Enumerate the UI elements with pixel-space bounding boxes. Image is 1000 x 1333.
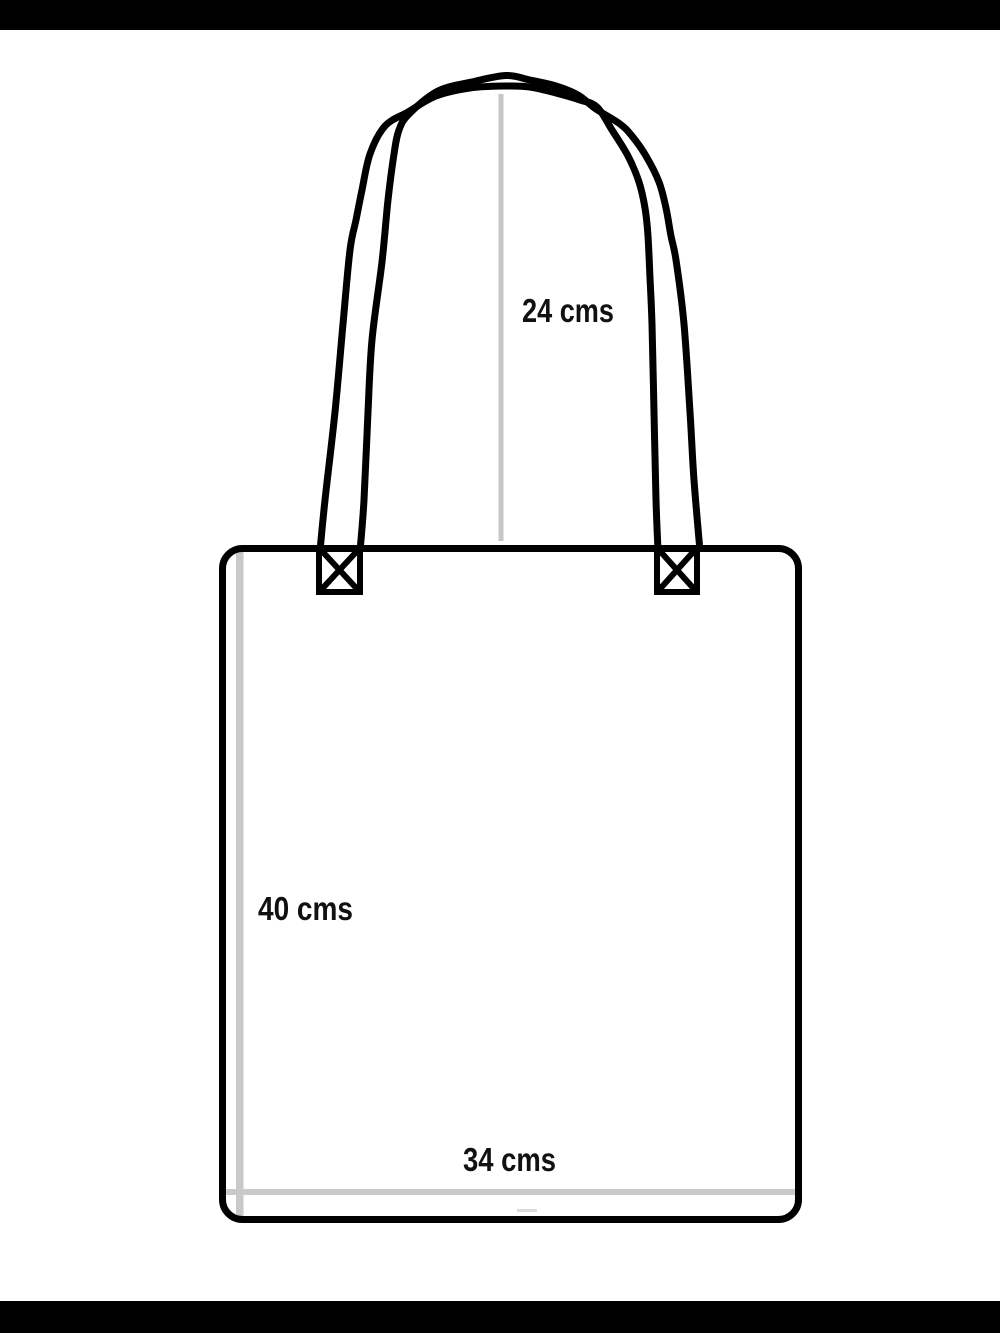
svg-text:40 cms: 40 cms bbox=[258, 890, 353, 927]
svg-text:24 cms: 24 cms bbox=[522, 292, 614, 329]
svg-text:34 cms: 34 cms bbox=[463, 1141, 556, 1178]
